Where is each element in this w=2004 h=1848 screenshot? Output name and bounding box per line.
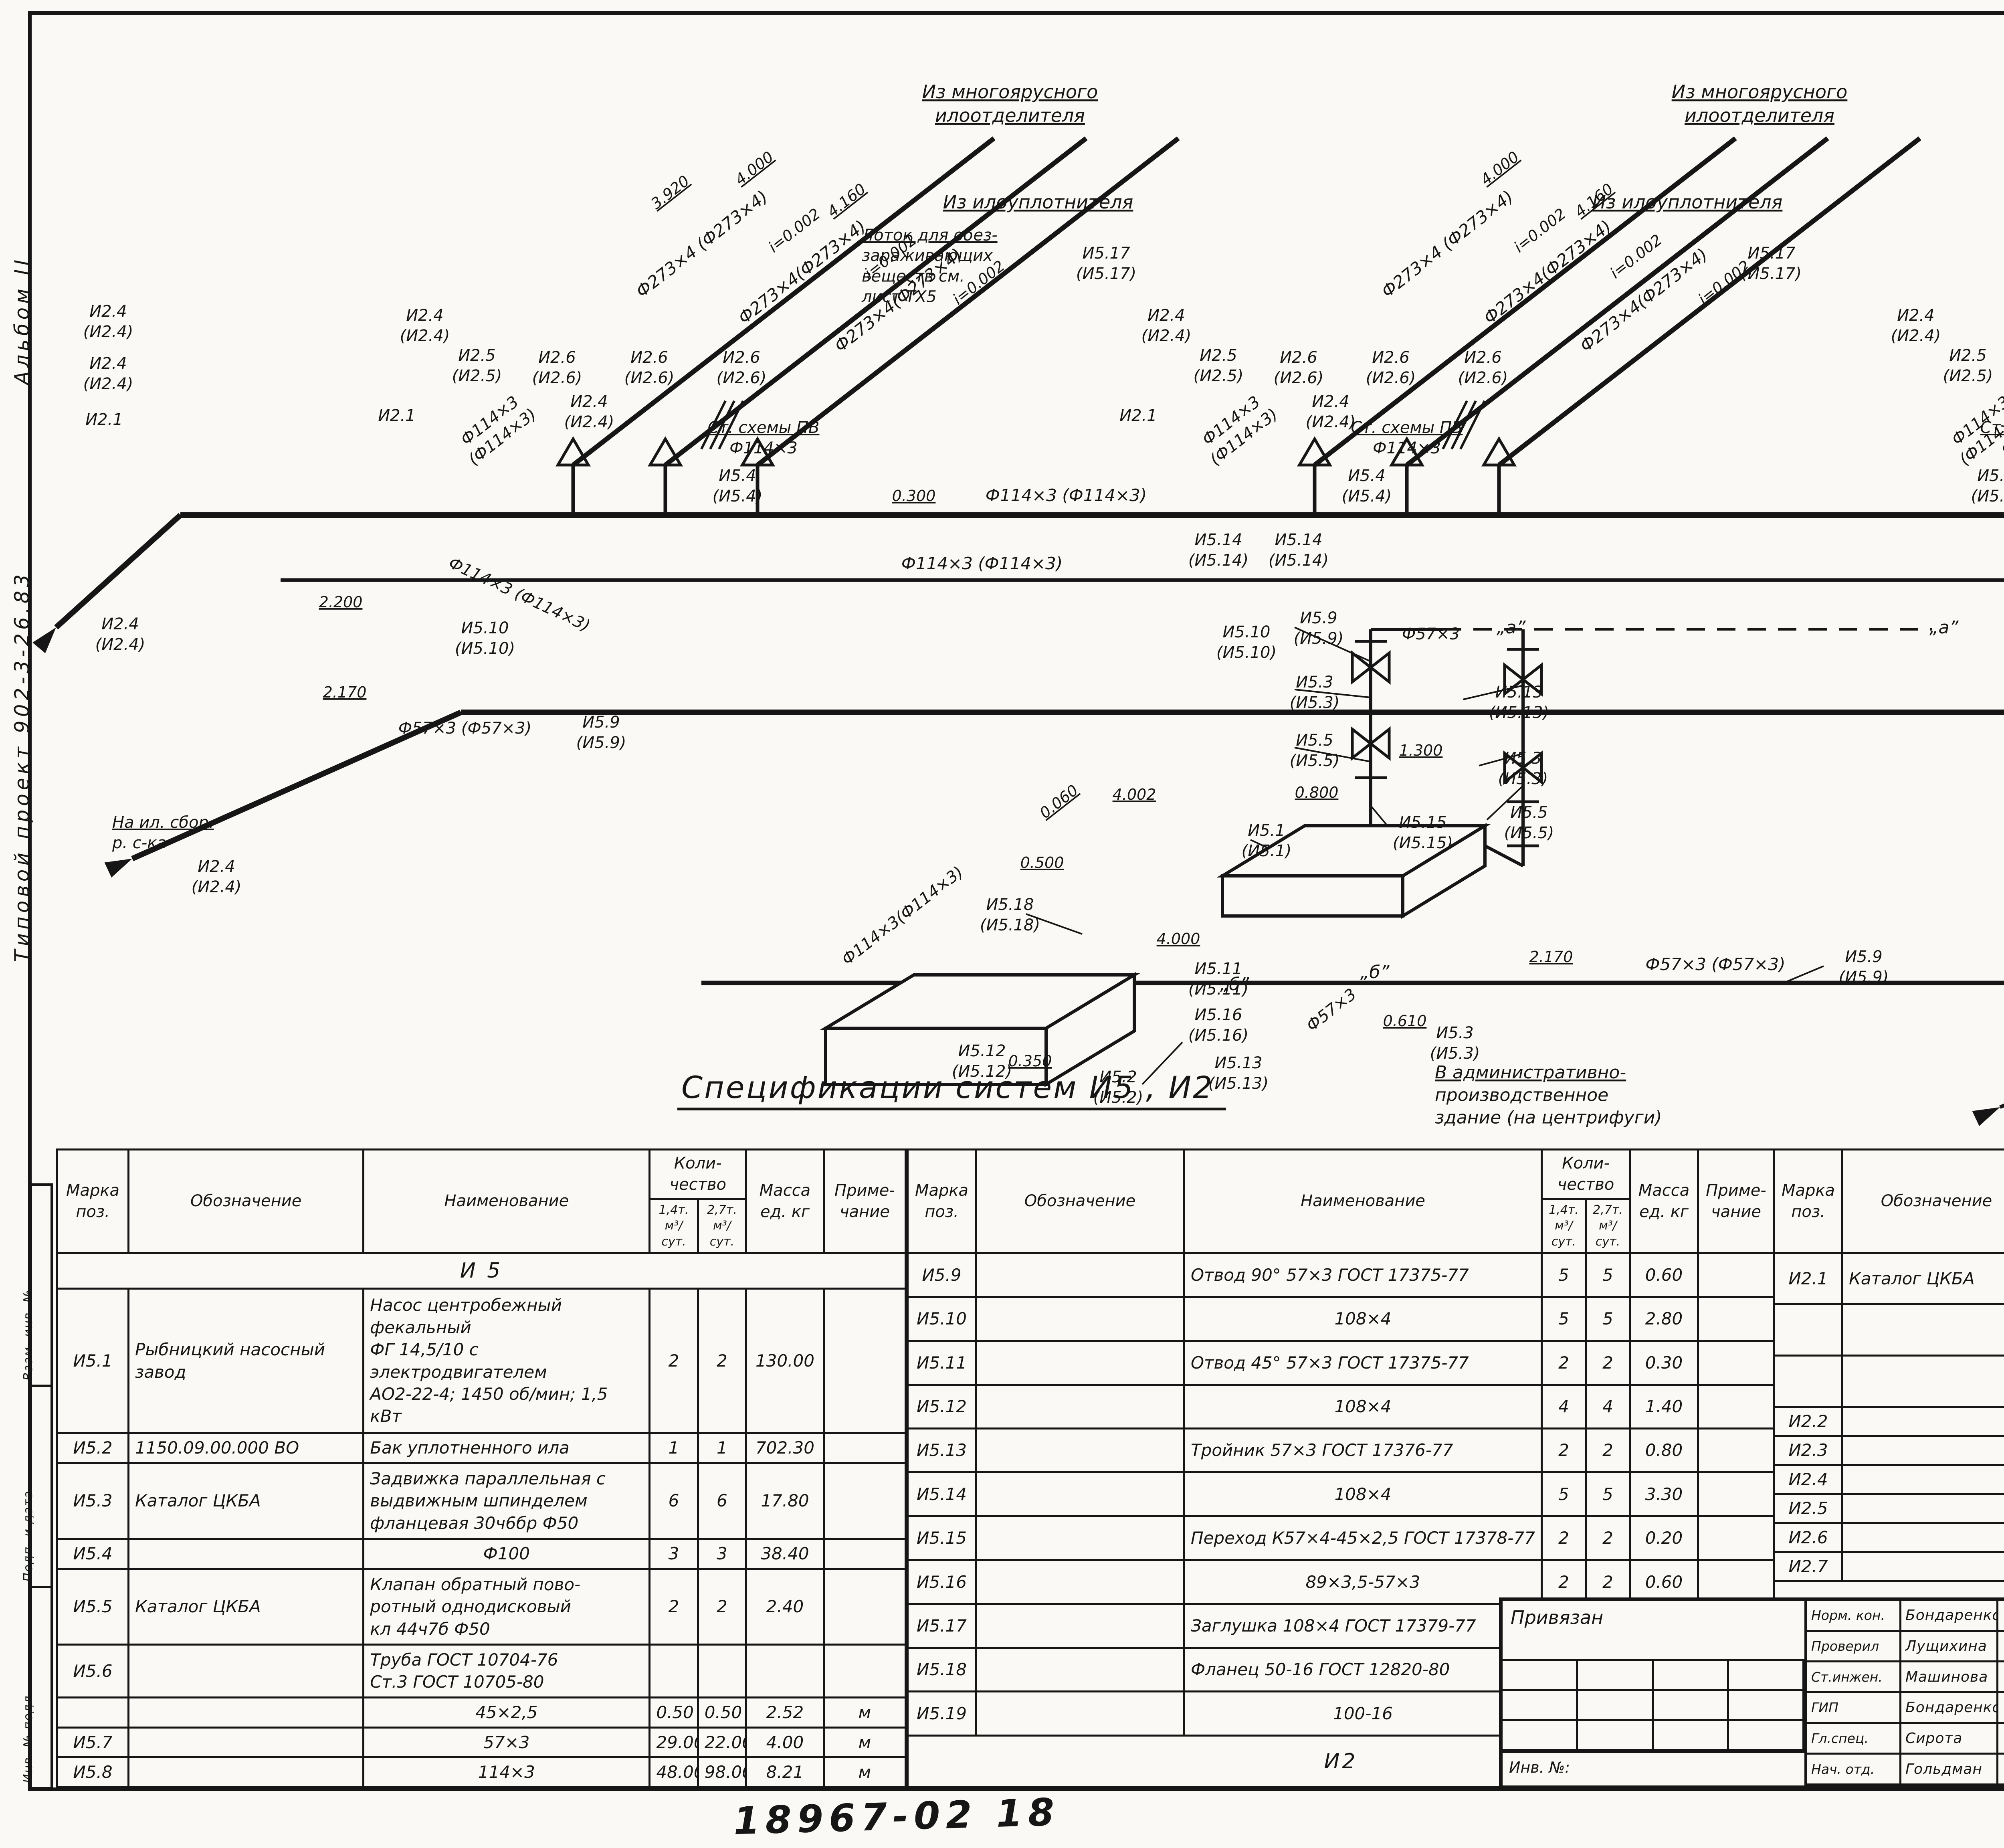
spec-cell: 130.00	[746, 1288, 824, 1433]
signer-role: Норм. кон.	[1807, 1601, 1901, 1632]
spec-cell: И5.1	[57, 1288, 129, 1433]
piping-isometric-diagram: Из многоярусногоилоотделителяИз многояру…	[0, 0, 2004, 1138]
spec-row: И2.2114×351.0051.008.21м	[1774, 1407, 2004, 1436]
spec-cell	[1842, 1465, 2004, 1494]
diagram-label: 2.170	[323, 683, 367, 701]
spec-cell	[1698, 1516, 1774, 1560]
spec-cell	[1698, 1297, 1774, 1341]
spec-cell: 2.80	[1630, 1297, 1698, 1341]
diagram-label: И2.5(И2.5)	[1194, 346, 1244, 385]
spec-cell: Труба ГОСТ 10704-76 Ст.3 ГОСТ 10705-80	[364, 1644, 650, 1697]
spec-cell	[128, 1644, 363, 1697]
spec-cell: Клапан обратный пово- ротный однодисковы…	[364, 1569, 650, 1644]
spec-header: Обозначение	[1842, 1150, 2004, 1253]
diagram-label: На ил. сбор.р. с-ка	[112, 813, 214, 852]
spec-table-i5-left: Марка поз.ОбозначениеНаименованиеКоли- ч…	[56, 1148, 907, 1788]
diagram-label: Из илоуплотнителя	[943, 191, 1133, 213]
spec-row: И2.1Каталог ЦКБАЗадвижка параллельная с …	[1774, 1253, 2004, 1304]
spec-row: И2.5Тройник 108×4 ГОСТ 17376-77883.30	[1774, 1494, 2004, 1523]
spec-cell: 0.50	[698, 1697, 746, 1727]
diagram-label: И2.6(И2.6)	[717, 348, 767, 387]
spec-cell	[976, 1297, 1184, 1341]
spec-row: И5.11Отвод 45° 57×3 ГОСТ 17375-77220.30	[908, 1341, 1774, 1385]
diagram-label: 4.000	[1477, 148, 1523, 189]
diagram-label: 0.060	[1036, 781, 1082, 822]
signer-name: Лущихина	[1901, 1632, 1998, 1663]
spec-cell	[1698, 1253, 1774, 1297]
spec-header: Приме- чание	[1698, 1150, 1774, 1253]
spec-header: Наименование	[364, 1150, 650, 1253]
diagram-label: И5.4(И5.4)	[713, 467, 763, 505]
diagram-label: И5.10(И5.10)	[1216, 623, 1277, 662]
spec-cell: 48.00	[650, 1757, 698, 1787]
spec-header: Масса ед. кг	[1630, 1150, 1698, 1253]
spec-cell: И2.3	[1774, 1436, 1842, 1465]
diagram-label: И5.9(И5.9)	[1294, 609, 1344, 648]
spec-row: И5.13Тройник 57×3 ГОСТ 17376-77220.80	[908, 1428, 1774, 1472]
signature	[1998, 1724, 2004, 1755]
spec-cell	[976, 1604, 1184, 1648]
diagram-label: „а”	[1929, 617, 1959, 638]
spec-row: И5.15Переход К57×4-45×2,5 ГОСТ 17378-772…	[908, 1516, 1774, 1560]
spec-table-i2: Марка поз.ОбозначениеНаименованиеКоли- ч…	[1773, 1148, 2004, 1582]
spec-section-label: И 5	[57, 1253, 906, 1288]
spec-header: 1,4т. м³/сут.	[650, 1199, 698, 1253]
diagram-label: Из многоярусногоилоотделителя	[1672, 81, 1848, 126]
signer-role: Ст.инжен.	[1807, 1662, 1901, 1693]
spec-cell: 2.52	[746, 1697, 824, 1727]
diagram-label: Ф114×3 (Ф114×3)	[986, 485, 1147, 505]
diagram-label: Ф57×3	[1402, 625, 1460, 643]
spec-cell: 0.30	[1630, 1341, 1698, 1385]
spec-cell: И2.2	[1774, 1407, 1842, 1436]
spec-cell: И2.1	[1774, 1253, 1842, 1304]
spec-cell	[650, 1644, 698, 1697]
spec-cell: Насос центробежный фекальный ФГ 14,5/10 …	[364, 1288, 650, 1433]
spec-header: Коли- чество	[1542, 1150, 1630, 1199]
spec-cell: Каталог ЦКБА	[1842, 1253, 2004, 1304]
spec-row: И5.6Труба ГОСТ 10704-76 Ст.3 ГОСТ 10705-…	[57, 1644, 906, 1697]
inventory-label: Инв. №:	[1503, 1751, 1804, 1785]
diagram-label: И2.6(И2.6)	[1274, 348, 1324, 387]
spec-header: Марка поз.	[908, 1150, 976, 1253]
spec-cell: 1150.09.00.000 ВО	[128, 1433, 363, 1463]
spec-cell: 0.80	[1630, 1428, 1698, 1472]
spec-cell: 98.00	[698, 1757, 746, 1787]
spec-row: И 5	[57, 1253, 906, 1288]
signers-table: Норм. кон.БондаренкоПроверилЛущихинаСт.и…	[1807, 1601, 2004, 1785]
spec-cell: 3.30	[1630, 1472, 1698, 1516]
signer-name: Бондаренко	[1901, 1693, 1998, 1724]
spec-row: И5.3Каталог ЦКБАЗадвижка параллельная с …	[57, 1463, 906, 1539]
spec-cell: И2.4	[1774, 1465, 1842, 1494]
spec-cell: 57×3	[364, 1727, 650, 1757]
diagram-label: И5.14(И5.14)	[1188, 531, 1248, 570]
spec-cell	[976, 1428, 1184, 1472]
spec-cell: 2	[698, 1288, 746, 1433]
spec-cell	[128, 1697, 363, 1727]
diagram-label: И2.1	[378, 406, 416, 425]
diagram-label: И2.6(И2.6)	[624, 348, 675, 387]
spec-cell	[976, 1516, 1184, 1560]
spec-cell: Тройник 57×3 ГОСТ 17376-77	[1184, 1428, 1542, 1472]
spec-cell: 5	[1586, 1297, 1630, 1341]
spec-header: Марка поз.	[1774, 1150, 1842, 1253]
spec-caption: Спецификации систем И5 , И2	[677, 1070, 1226, 1110]
spec-header: Коли- чество	[650, 1150, 746, 1199]
spec-cell	[1842, 1304, 2004, 1356]
signature	[1998, 1755, 2004, 1785]
diagram-label: Ф273×4 (Ф273×4)	[1378, 186, 1517, 301]
diagram-label: И5.3(И5.3)	[1290, 673, 1340, 712]
spec-cell	[1842, 1407, 2004, 1436]
spec-cell: 4.00	[746, 1727, 824, 1757]
spec-cell: 6	[698, 1463, 746, 1539]
spec-cell: 108×4	[1184, 1472, 1542, 1516]
diagram-label: И2.6(И2.6)	[532, 348, 582, 387]
spec-cell: 108×4	[1184, 1385, 1542, 1428]
diagram-label: 3.920	[648, 172, 693, 213]
signature	[1998, 1601, 2004, 1632]
spec-cell: Рыбницкий насосный завод	[128, 1288, 363, 1433]
spec-cell: 2	[1586, 1516, 1630, 1560]
diagram-label: 4.160	[824, 180, 869, 221]
diagram-label: И2.4(И2.4)	[83, 354, 133, 393]
spec-cell: И5.14	[908, 1472, 976, 1516]
diagram-label: И5.16(И5.16)	[1188, 1006, 1248, 1045]
diagram-label: 0.610	[1383, 1012, 1427, 1030]
diagram-label: И2.4(И2.4)	[400, 306, 450, 345]
spec-cell: И5.13	[908, 1428, 976, 1472]
diagram-label: И2.1	[85, 410, 123, 429]
spec-header: Марка поз.	[57, 1150, 129, 1253]
signature-block: Привязан Инв. №: Норм. кон.БондаренкоПро…	[1499, 1597, 2004, 1789]
archive-stamp: 18967-02 18	[733, 1791, 1061, 1844]
spec-cell: 5	[1542, 1253, 1586, 1297]
spec-cell: 2	[1586, 1341, 1630, 1385]
diagram-label: И5.9(И5.9)	[1839, 948, 1889, 987]
spec-cell: Задвижка параллельная с выдвижным шпинде…	[364, 1463, 650, 1539]
diagram-label: Из многоярусногоилоотделителя	[922, 81, 1098, 126]
diagram-label: Ф114×3(Ф114×3)	[453, 389, 540, 469]
spec-cell	[1774, 1356, 1842, 1407]
signer-name: Бондаренко	[1901, 1601, 1998, 1632]
attached-label: Привязан	[1503, 1601, 1804, 1661]
spec-cell: И5.16	[908, 1560, 976, 1604]
spec-cell: 5	[1586, 1472, 1630, 1516]
diagram-label: „б”	[1360, 962, 1390, 983]
spec-cell: 100-16	[1184, 1692, 1542, 1735]
diagram-label: И5.14(И5.14)	[1269, 531, 1329, 570]
diagram-label: Ф114×3(Ф114×3)	[1194, 389, 1281, 469]
spec-header: 2,7т. м³/сут.	[698, 1199, 746, 1253]
spec-cell: И2.5	[1774, 1494, 1842, 1523]
diagram-label: i=0.002	[1511, 205, 1569, 256]
spec-cell	[976, 1253, 1184, 1297]
diagram-label: И2.5(И2.5)	[1943, 346, 1993, 385]
spec-cell	[976, 1692, 1184, 1735]
spec-cell	[1698, 1341, 1774, 1385]
diagram-label: И2.4(И2.4)	[564, 392, 614, 431]
spec-cell: И5.18	[908, 1648, 976, 1691]
diagram-label: 4.000	[1157, 930, 1200, 948]
signer-name: Гольдман	[1901, 1755, 1998, 1785]
signer-role: Гл.спец.	[1807, 1724, 1901, 1755]
spec-cell	[128, 1539, 363, 1569]
spec-cell: 22.00	[698, 1727, 746, 1757]
diagram-label: И2.4(И2.4)	[192, 857, 242, 896]
spec-cell: 5	[1542, 1472, 1586, 1516]
signer-role: ГИП	[1807, 1693, 1901, 1724]
spec-cell	[1842, 1552, 2004, 1581]
spec-cell	[1842, 1523, 2004, 1552]
spec-cell: И5.5	[57, 1569, 129, 1644]
diagram-label: И2.1	[1119, 406, 1157, 425]
margin-strip-cell: Инв. № подл.	[32, 1588, 51, 1787]
spec-cell: И5.17	[908, 1604, 976, 1648]
spec-cell	[824, 1569, 905, 1644]
attachment-cell: Привязан Инв. №:	[1503, 1601, 1807, 1785]
diagram-label: И5.5(И5.5)	[1504, 803, 1554, 842]
diagram-label: 1.300	[1399, 742, 1443, 759]
spec-cell: И5.9	[908, 1253, 976, 1297]
spec-cell	[824, 1433, 905, 1463]
spec-cell: И5.3	[57, 1463, 129, 1539]
spec-row: И5.12108×4441.40	[908, 1385, 1774, 1428]
diagram-label: И5.3(И5.3)	[1430, 1024, 1480, 1063]
spec-cell: 2	[1542, 1428, 1586, 1472]
spec-row: 45×2,50.500.502.52м	[57, 1697, 906, 1727]
diagram-label: Ф57×3	[1303, 985, 1360, 1035]
spec-cell	[1842, 1436, 2004, 1465]
spec-cell: 4	[1586, 1385, 1630, 1428]
spec-cell: 3	[698, 1539, 746, 1569]
spec-cell: 2	[650, 1288, 698, 1433]
spec-cell	[698, 1644, 746, 1697]
spec-cell: 2	[1542, 1341, 1586, 1385]
spec-cell: 2	[698, 1569, 746, 1644]
spec-row: Труба ГОСТ 10704-76 Ст.3 ГОСТ 10705-80	[1774, 1356, 2004, 1407]
spec-cell: 1	[650, 1433, 698, 1463]
spec-row: И2.6Переход Э273×8-108×4 ГОСТ 17378-7799…	[1774, 1523, 2004, 1552]
spec-cell: Ф100	[364, 1539, 650, 1569]
diagram-label: 4.000	[732, 148, 777, 189]
spec-cell: Отвод 90° 57×3 ГОСТ 17375-77	[1184, 1253, 1542, 1297]
spec-row: И5.10108×4552.80	[908, 1297, 1774, 1341]
signature	[1998, 1662, 2004, 1693]
spec-cell: И5.4	[57, 1539, 129, 1569]
signer-name: Машинова	[1901, 1662, 1998, 1693]
spec-cell: 5	[1586, 1253, 1630, 1297]
spec-header: Обозначение	[128, 1150, 363, 1253]
spec-header: Наименование	[1184, 1150, 1542, 1253]
spec-cell	[976, 1648, 1184, 1691]
diagram-label: Ф57×3 (Ф57×3)	[398, 719, 532, 738]
spec-cell	[824, 1644, 905, 1697]
diagram-label: 0.800	[1295, 784, 1339, 801]
signature	[1998, 1632, 2004, 1663]
spec-cell	[1698, 1472, 1774, 1516]
spec-cell: 0.50	[650, 1697, 698, 1727]
diagram-label: И5.4(И5.4)	[1342, 467, 1392, 505]
spec-cell	[1698, 1428, 1774, 1472]
diagram-label: И2.4(И2.4)	[1306, 392, 1356, 431]
spec-cell: И5.7	[57, 1727, 129, 1757]
diagram-label: 4.002	[1113, 786, 1156, 803]
diagram-label: Ф57×3 (Ф57×3)	[1645, 954, 1785, 974]
spec-cell: И5.8	[57, 1757, 129, 1787]
spec-cell: 0.20	[1630, 1516, 1698, 1560]
spec-header: 2,7т. м³/сут.	[1586, 1199, 1630, 1253]
spec-cell: Каталог ЦКБА	[128, 1569, 363, 1644]
spec-cell	[824, 1288, 905, 1433]
spec-cell: И5.6	[57, 1644, 129, 1697]
spec-header: Масса ед. кг	[746, 1150, 824, 1253]
spec-header: 1,4т. м³/сут.	[1542, 1199, 1586, 1253]
spec-cell: Бак уплотненного ила	[364, 1433, 650, 1463]
spec-cell: м	[824, 1697, 905, 1727]
spec-cell	[128, 1727, 363, 1757]
spec-cell	[976, 1560, 1184, 1604]
spec-cell: И2.6	[1774, 1523, 1842, 1552]
diagram-label: „а”	[1497, 617, 1526, 638]
diagram-label: И2.4(И2.4)	[1141, 306, 1192, 345]
spec-row: И5.9Отвод 90° 57×3 ГОСТ 17375-77550.60	[908, 1253, 1774, 1297]
spec-cell: 114×3	[364, 1757, 650, 1787]
margin-strip-cell: Взам. инв. №	[32, 1186, 51, 1387]
spec-cell: И2.7	[1774, 1552, 1842, 1581]
spec-cell: И5.12	[908, 1385, 976, 1428]
spec-row: И2.3273×412.0018.0026.53м	[1774, 1436, 2004, 1465]
diagram-label: В административно-производственноездание…	[1435, 1062, 1662, 1128]
spec-cell: 702.30	[746, 1433, 824, 1463]
spec-row: И5.8114×348.0098.008.21м	[57, 1757, 906, 1787]
spec-cell: И5.10	[908, 1297, 976, 1341]
spec-cell	[1842, 1494, 2004, 1523]
signer-name: Сирота	[1901, 1724, 1998, 1755]
diagram-label: 0.500	[1020, 854, 1064, 871]
spec-cell	[57, 1697, 129, 1727]
spec-cell: И5.11	[908, 1341, 976, 1385]
spec-cell: 1	[698, 1433, 746, 1463]
spec-cell	[824, 1539, 905, 1569]
signer-role: Проверил	[1807, 1632, 1901, 1663]
spec-row: фланцевая 30ч6бр Ф1006638.40	[1774, 1304, 2004, 1356]
spec-cell: Фланец 50-16 ГОСТ 12820-80	[1184, 1648, 1542, 1691]
spec-header: Приме- чание	[824, 1150, 905, 1253]
spec-cell: 89×3,5-57×3	[1184, 1560, 1542, 1604]
spec-row: И5.5Каталог ЦКБАКлапан обратный пово- ро…	[57, 1569, 906, 1644]
spec-cell: 45×2,5	[364, 1697, 650, 1727]
spec-row: И2.7Фланец 100-16 ГОСТ 12820-8012124.73	[1774, 1552, 2004, 1581]
spec-cell: 6	[650, 1463, 698, 1539]
spec-cell: Переход К57×4-45×2,5 ГОСТ 17378-77	[1184, 1516, 1542, 1560]
diagram-label: И5.10(И5.10)	[455, 619, 515, 658]
spec-row: И2.4Отвод 90° 108×4 ГОСТ 17375-7726262.8…	[1774, 1465, 2004, 1494]
diagram-label: 0.350	[1008, 1052, 1052, 1070]
diagram-label: i=0.002	[765, 205, 824, 256]
spec-cell: 2	[650, 1569, 698, 1644]
spec-cell	[1842, 1356, 2004, 1407]
spec-cell	[1774, 1304, 1842, 1356]
spec-header: Обозначение	[976, 1150, 1184, 1253]
spec-cell: 2.40	[746, 1569, 824, 1644]
diagram-label: И5.13(И5.13)	[1489, 683, 1549, 722]
spec-cell: 3	[650, 1539, 698, 1569]
diagram-label: И5.4(И5.4)	[1971, 467, 2004, 505]
signer-role: Нач. отд.	[1807, 1755, 1901, 1785]
diagram-label: Из илоуплотнителя	[1592, 191, 1783, 213]
spec-row: И5.21150.09.00.000 ВОБак уплотненного ил…	[57, 1433, 906, 1463]
diagram-label: Ф114×3 (Ф114×3)	[901, 554, 1063, 573]
diagram-label: И2.4(И2.4)	[83, 302, 133, 341]
spec-cell	[746, 1644, 824, 1697]
spec-cell: 1.40	[1630, 1385, 1698, 1428]
diagram-label: И2.5(И2.5)	[452, 346, 502, 385]
spec-cell: Заглушка 108×4 ГОСТ 17379-77	[1184, 1604, 1542, 1648]
diagram-label: И2.6(И2.6)	[1366, 348, 1416, 387]
spec-row: И5.14108×4553.30	[908, 1472, 1774, 1516]
spec-cell	[1698, 1385, 1774, 1428]
spec-cell: 38.40	[746, 1539, 824, 1569]
margin-strip: Взам. инв. № Подп. и дата Инв. № подл.	[30, 1183, 53, 1789]
spec-cell: 17.80	[746, 1463, 824, 1539]
drawing-sheet: { "page": { "number": "17", "stamp": "18…	[0, 0, 2004, 1848]
spec-cell: И5.15	[908, 1516, 976, 1560]
diagram-label: 2.170	[1529, 948, 1573, 966]
diagram-label: 2.200	[319, 593, 363, 611]
spec-row: И5.1Рыбницкий насосный заводНасос центро…	[57, 1288, 906, 1433]
diagram-label: i=0.002	[1607, 231, 1665, 282]
spec-row: И5.4Ф1003338.40	[57, 1539, 906, 1569]
diagram-label: И5.9(И5.9)	[576, 713, 626, 752]
diagram-label: И5.17(И5.17)	[1741, 244, 1802, 283]
diagram-label: И2.6(И2.6)	[1458, 348, 1508, 387]
spec-cell: Каталог ЦКБА	[128, 1463, 363, 1539]
diagram-label: И2.4(И2.4)	[1891, 306, 1941, 345]
spec-cell: 0.60	[1630, 1253, 1698, 1297]
spec-cell: 2	[1586, 1428, 1630, 1472]
spec-cell: м	[824, 1757, 905, 1787]
spec-cell	[976, 1341, 1184, 1385]
spec-cell: И5.2	[57, 1433, 129, 1463]
spec-cell: 108×4	[1184, 1297, 1542, 1341]
spec-cell	[976, 1385, 1184, 1428]
spec-cell: 4	[1542, 1385, 1586, 1428]
diagram-label: 0.300	[892, 487, 936, 505]
margin-strip-cell: Подп. и дата	[32, 1387, 51, 1588]
diagram-label: И5.17(И5.17)	[1076, 244, 1136, 283]
spec-row: И5.757×329.0022.004.00м	[57, 1727, 906, 1757]
spec-cell	[128, 1757, 363, 1787]
spec-cell	[976, 1472, 1184, 1516]
diagram-label: И2.4(И2.4)	[95, 615, 145, 654]
spec-cell: Отвод 45° 57×3 ГОСТ 17375-77	[1184, 1341, 1542, 1385]
revision-grid	[1503, 1661, 1804, 1751]
spec-cell: 29.00	[650, 1727, 698, 1757]
spec-cell: 2	[1542, 1516, 1586, 1560]
diagram-label: Ф114×3(Ф114×3)	[838, 863, 967, 969]
spec-cell: м	[824, 1727, 905, 1757]
signature	[1998, 1693, 2004, 1724]
spec-cell: 8.21	[746, 1757, 824, 1787]
spec-cell	[824, 1463, 905, 1539]
spec-cell: И5.19	[908, 1692, 976, 1735]
spec-cell: 5	[1542, 1297, 1586, 1341]
